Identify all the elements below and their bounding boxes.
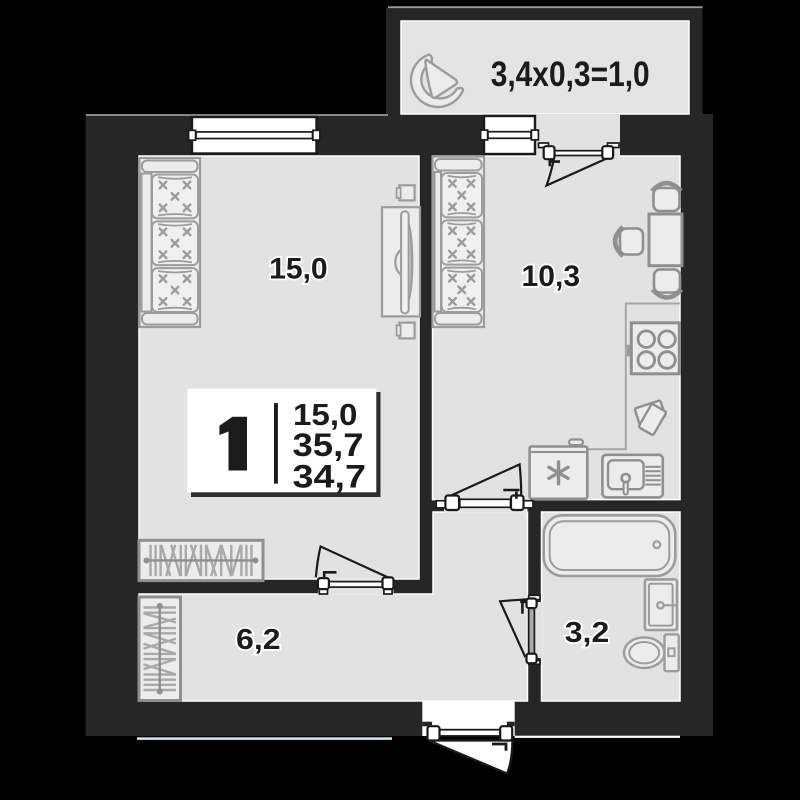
svg-text:15,0: 15,0	[269, 252, 328, 285]
svg-text:10,3: 10,3	[522, 260, 581, 293]
svg-text:6,2: 6,2	[236, 624, 281, 656]
svg-text:3,4x0,3=1,0: 3,4x0,3=1,0	[491, 55, 650, 94]
svg-text:34,7: 34,7	[293, 458, 367, 494]
svg-text:3,2: 3,2	[565, 617, 610, 649]
